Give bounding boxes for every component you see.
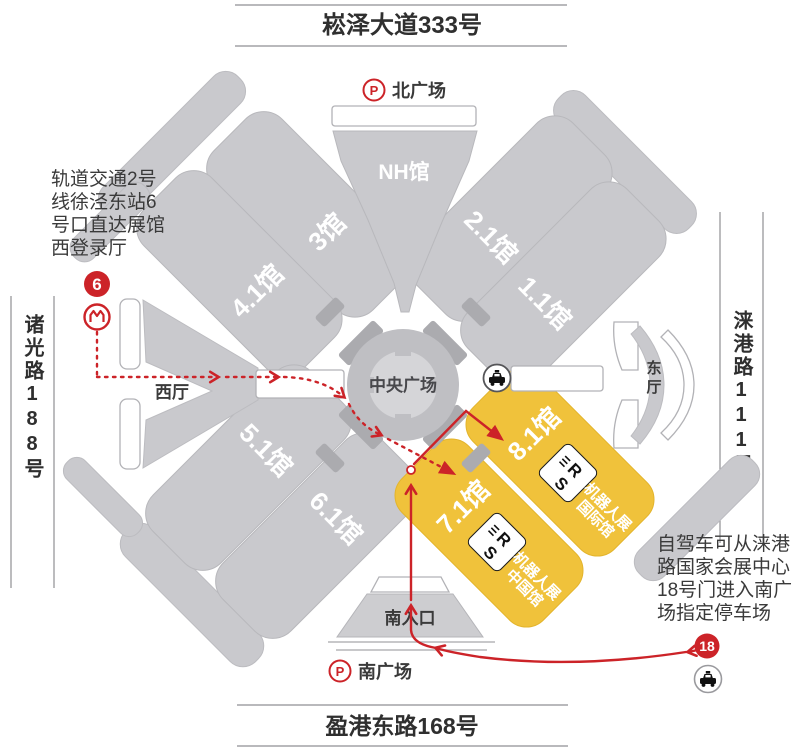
metro-exit-number: 6 xyxy=(92,275,101,294)
venue-map: 崧泽大道333号 盈港东路168号 诸光路188号 涞港路111号 xyxy=(0,0,800,756)
north-square-label: 北广场 xyxy=(392,80,446,101)
metro-note-line: 线徐泾东站6 xyxy=(51,191,157,213)
metro-badge-group: 6 xyxy=(84,271,110,330)
road-label-south: 盈港东路168号 xyxy=(324,713,478,739)
east-canopy-lower xyxy=(614,400,638,448)
road-label-west: 诸光路188号 xyxy=(21,314,45,481)
south-square-label: 南广场 xyxy=(358,661,412,682)
drive-note: 自驾车可从涞港 路国家会展中心 18号门进入南广 场指定停车场 xyxy=(657,533,792,624)
south-square-group: P 南广场 xyxy=(330,661,413,683)
road-west: 诸光路188号 xyxy=(11,296,54,588)
gate-badge-group: 18 xyxy=(695,634,722,693)
central-plaza-label: 中央广场 xyxy=(369,375,437,395)
drive-note-line: 场指定停车场 xyxy=(657,602,771,624)
east-hall-label: 东厅 xyxy=(645,359,662,398)
drive-note-line: 路国家会展中心 xyxy=(657,556,790,578)
metro-note-line: 西登录厅 xyxy=(51,237,127,259)
taxi-point-group xyxy=(484,365,511,392)
ring-notch xyxy=(395,414,411,423)
parking-letter: P xyxy=(336,664,345,679)
hall-label-nh: NH馆 xyxy=(378,160,429,184)
metro-note-line: 轨道交通2号 xyxy=(51,168,157,190)
route-junction-node xyxy=(407,466,415,474)
west-canopy-upper xyxy=(120,299,140,369)
east-corridor xyxy=(511,366,603,391)
west-hall-label: 西厅 xyxy=(155,383,189,402)
east-outer-arc xyxy=(661,330,694,440)
drive-note-line: 自驾车可从涞港 xyxy=(657,533,790,555)
road-north: 崧泽大道333号 xyxy=(235,5,567,46)
north-square-group: P 北广场 xyxy=(364,80,447,102)
map-canvas: 崧泽大道333号 盈港东路168号 诸光路188号 涞港路111号 xyxy=(0,0,800,756)
west-corridor xyxy=(256,370,344,398)
parking-letter: P xyxy=(370,83,379,98)
road-label-north: 崧泽大道333号 xyxy=(322,11,482,39)
west-canopy-lower xyxy=(120,399,140,469)
ring-notch xyxy=(395,347,411,356)
drive-note-line: 18号门进入南广 xyxy=(657,579,792,601)
metro-note-line: 号口直达展馆 xyxy=(51,214,165,236)
road-label-east: 涞港路111号 xyxy=(730,309,753,477)
north-entrance-building xyxy=(332,106,476,126)
east-canopy-upper xyxy=(614,322,638,370)
gate-18-number: 18 xyxy=(699,638,715,654)
road-south: 盈港东路168号 xyxy=(237,705,568,746)
